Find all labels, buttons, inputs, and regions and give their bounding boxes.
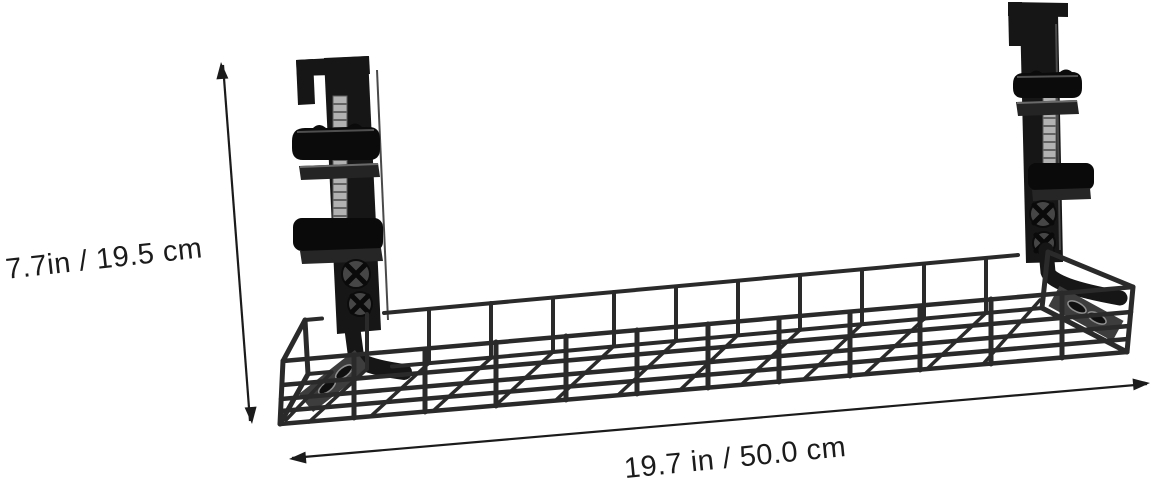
right-knob-highlight xyxy=(1017,76,1078,77)
right-clamp-knob xyxy=(1013,70,1082,99)
product-illustration: 7.7in / 19.5 cm 19.7 in / 50.0 cm xyxy=(0,0,1161,489)
cable-tray-basket xyxy=(280,252,1133,424)
width-arrowhead-left xyxy=(288,452,306,465)
left-desk-clamp xyxy=(292,56,404,372)
width-arrowhead-right xyxy=(1133,377,1151,390)
height-arrowhead-top xyxy=(215,62,228,80)
right-clamp-lower-arm-base xyxy=(1032,188,1091,201)
left-clamp-lower-arm xyxy=(293,218,383,251)
right-clamp-lower-arm xyxy=(1028,163,1094,190)
height-arrowhead-bottom xyxy=(245,407,258,425)
left-clamp-knob xyxy=(292,124,380,161)
tray-front-wall xyxy=(280,287,1133,424)
height-dimension-arrow xyxy=(223,65,250,421)
left-clamp-top-lip xyxy=(296,59,315,105)
height-dimension-label: 7.7in / 19.5 cm xyxy=(4,232,204,286)
width-dimension-label: 19.7 in / 50.0 cm xyxy=(623,431,848,485)
product-image: 7.7in / 19.5 cm 19.7 in / 50.0 cm xyxy=(0,0,1161,489)
right-clamp-top-lip xyxy=(1008,2,1023,46)
right-desk-clamp xyxy=(1008,2,1120,298)
